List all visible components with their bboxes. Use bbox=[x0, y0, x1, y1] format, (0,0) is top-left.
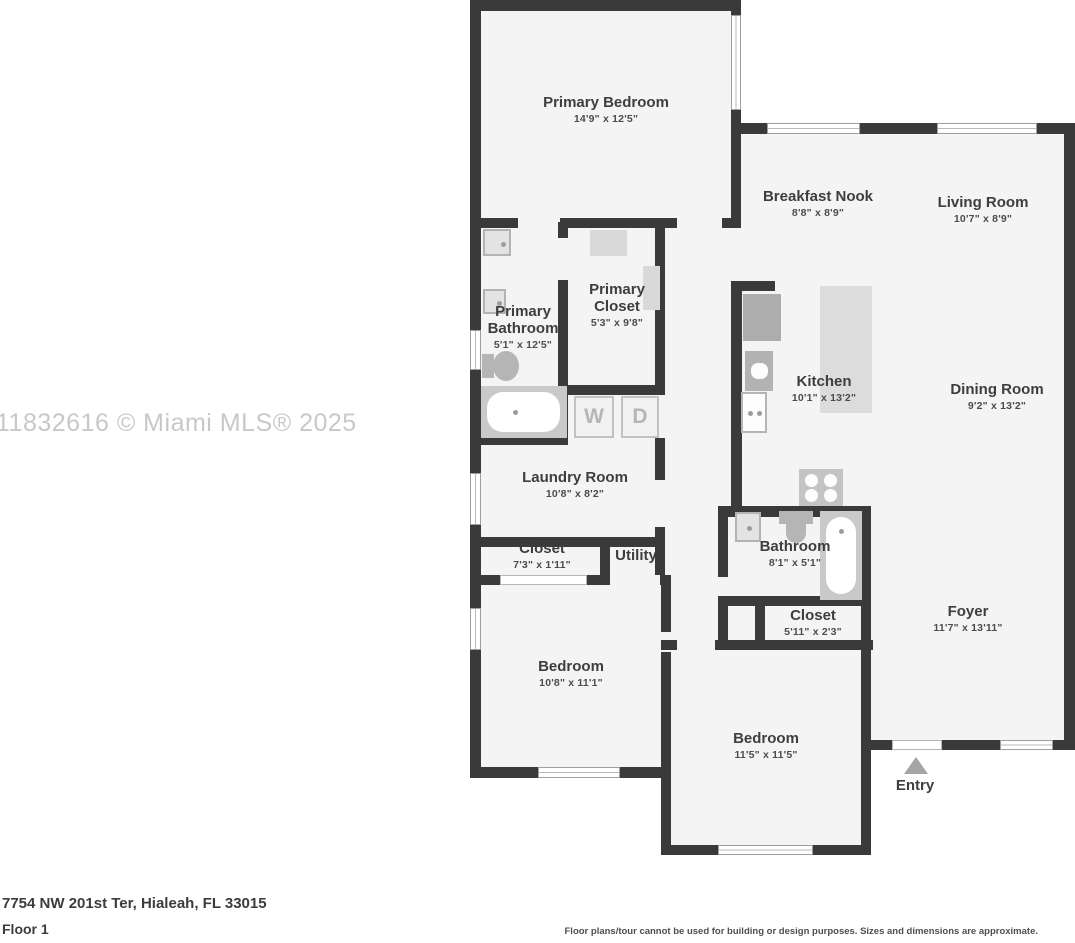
window-icon bbox=[470, 330, 481, 370]
room-label-kitchen: Kitchen 10'1" x 13'2" bbox=[792, 373, 856, 405]
property-address: 7754 NW 201st Ter, Hialeah, FL 33015 bbox=[2, 895, 267, 912]
room-label-bathroom: Bathroom 8'1" x 5'1" bbox=[760, 538, 831, 570]
washer-icon: W bbox=[574, 396, 614, 438]
mls-watermark: 11832616 © Miami MLS® 2025 bbox=[0, 409, 357, 438]
floor-plan: W D Entry Primary Bedroom 14'9" x 12'5" … bbox=[0, 0, 1075, 943]
kitchen-sink-icon bbox=[745, 351, 773, 391]
entry-label: Entry bbox=[896, 777, 934, 794]
dryer-icon: D bbox=[621, 396, 659, 438]
door-gap bbox=[677, 640, 715, 650]
wall bbox=[470, 0, 481, 778]
window-icon bbox=[470, 473, 481, 525]
door-gap bbox=[610, 575, 660, 585]
door-gap bbox=[518, 218, 560, 228]
room-label-primary-bedroom: Primary Bedroom 14'9" x 12'5" bbox=[543, 94, 669, 126]
wall bbox=[731, 281, 775, 291]
room-label-bedroom-1: Bedroom 10'8" x 11'1" bbox=[538, 658, 604, 690]
door-gap bbox=[655, 480, 665, 527]
window-icon bbox=[937, 123, 1037, 134]
room-label-living-room: Living Room 10'7" x 8'9" bbox=[938, 194, 1029, 226]
wall bbox=[755, 606, 765, 650]
room-label-primary-bathroom: Primary Bathroom 5'1" x 12'5" bbox=[488, 303, 559, 352]
entry-door-gap bbox=[892, 740, 942, 750]
window-icon bbox=[1000, 740, 1053, 750]
entry-arrow-icon bbox=[904, 757, 928, 774]
dishwasher-icon bbox=[741, 392, 767, 433]
room-label-closet-2: Closet 5'11" x 2'3" bbox=[784, 607, 842, 639]
window-icon bbox=[731, 15, 741, 110]
floor-number-label: Floor 1 bbox=[2, 921, 49, 937]
wall bbox=[661, 585, 671, 855]
window-icon bbox=[767, 123, 860, 134]
room-label-utility: Utility bbox=[615, 547, 657, 564]
toilet-icon bbox=[482, 351, 520, 381]
window-icon bbox=[470, 608, 481, 650]
room-label-primary-closet: Primary Closet 5'3" x 9'8" bbox=[589, 281, 645, 330]
bathtub-icon bbox=[481, 386, 567, 438]
room-label-breakfast-nook: Breakfast Nook 8'8" x 8'9" bbox=[763, 188, 873, 220]
window-icon bbox=[718, 845, 813, 855]
wall bbox=[1064, 123, 1075, 750]
door-gap bbox=[677, 218, 722, 228]
sink-vanity-icon bbox=[483, 229, 511, 256]
room-label-dining-room: Dining Room 9'2" x 13'2" bbox=[950, 381, 1043, 413]
closet-sliding-door bbox=[500, 575, 587, 585]
door-gap bbox=[558, 238, 568, 280]
room-label-bedroom-2: Bedroom 11'5" x 11'5" bbox=[733, 730, 799, 762]
fridge-icon bbox=[743, 294, 781, 341]
disclaimer-text: Floor plans/tour cannot be used for buil… bbox=[565, 926, 1039, 937]
room-label-hall-closet: Closet 7'3" x 1'11" bbox=[513, 540, 571, 572]
wall bbox=[861, 506, 871, 855]
door-gap bbox=[718, 577, 728, 597]
closet-shelf bbox=[590, 230, 627, 256]
dryer-letter: D bbox=[632, 405, 647, 429]
room-label-laundry-room: Laundry Room 10'8" x 8'2" bbox=[522, 469, 628, 501]
window-icon bbox=[538, 767, 620, 778]
stove-icon bbox=[799, 469, 843, 506]
wall bbox=[470, 0, 741, 11]
closet-shelf bbox=[643, 266, 660, 310]
washer-letter: W bbox=[584, 405, 604, 429]
sink-vanity-icon bbox=[735, 512, 761, 542]
room-label-foyer: Foyer 11'7" x 13'11" bbox=[933, 603, 1002, 635]
wall bbox=[568, 385, 665, 395]
